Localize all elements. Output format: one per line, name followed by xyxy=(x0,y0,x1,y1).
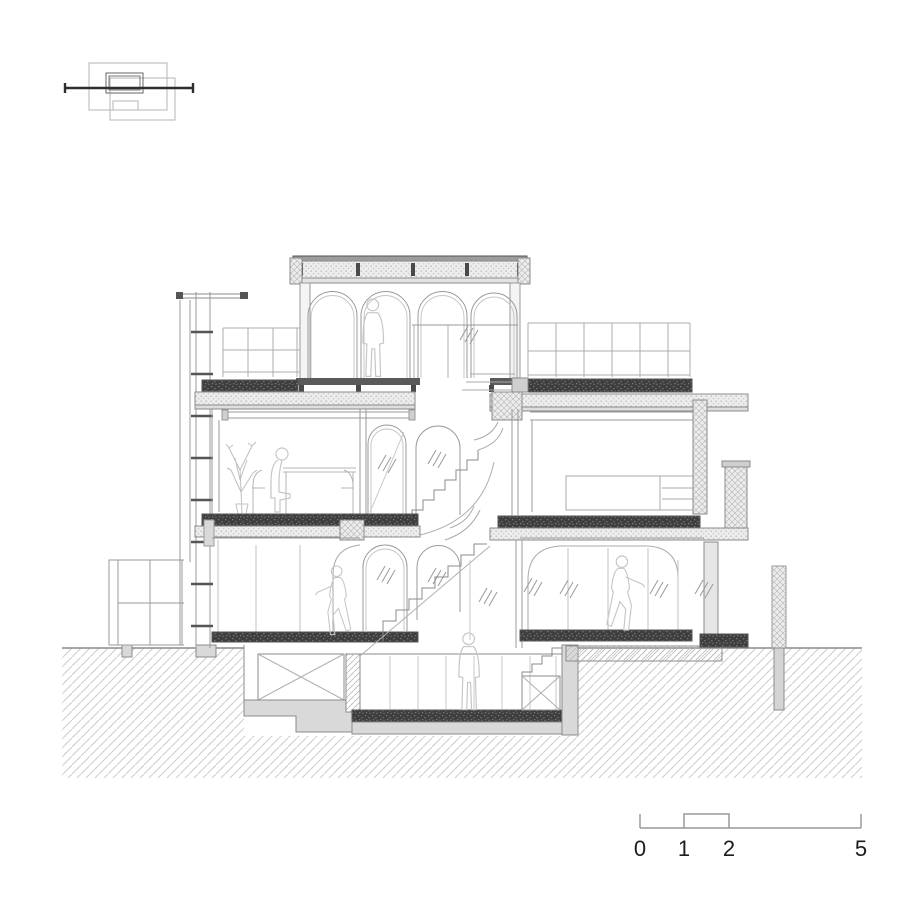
top-floor xyxy=(296,283,524,392)
section-cut-line xyxy=(65,83,193,93)
scale-label-2: 2 xyxy=(723,836,735,861)
scale-label-0: 0 xyxy=(634,836,646,861)
cabinet xyxy=(566,476,696,510)
person-walking-right xyxy=(607,556,645,630)
glazing-mark-icon xyxy=(377,566,395,584)
basement-floor-dark-band xyxy=(352,710,578,722)
floor-band-right xyxy=(498,516,700,528)
wide-arch xyxy=(528,546,678,632)
glazing-mark-icon xyxy=(650,580,668,598)
room-frame-right xyxy=(530,412,693,512)
fence-gate-post xyxy=(109,560,118,645)
floor-layers-left xyxy=(195,526,420,537)
fence-post-right xyxy=(772,566,786,710)
chimney-cap-left xyxy=(176,292,183,299)
frame-block-right xyxy=(409,410,415,420)
fence-rails xyxy=(118,560,184,645)
upper-flight-stringer xyxy=(420,462,494,535)
slab-layers-right xyxy=(490,394,748,407)
roof-build-up xyxy=(293,261,527,278)
basement xyxy=(0,0,578,735)
basement-floor-slab xyxy=(352,722,578,734)
glazing-mark-icon xyxy=(479,588,497,606)
roof-assembly xyxy=(290,256,530,284)
scale-bar-line xyxy=(640,814,861,828)
corner-block xyxy=(204,520,214,546)
right-terrace-railing xyxy=(528,323,690,377)
footing-fence xyxy=(122,645,132,657)
footing-left-wall xyxy=(196,645,216,657)
arch-corner xyxy=(333,545,360,640)
drawing-sheet: 0 1 2 5 xyxy=(0,0,920,920)
second-floor-right-room xyxy=(530,400,707,514)
terrace-gravel-right xyxy=(528,379,692,392)
glass-mullions xyxy=(568,548,678,630)
ground-floor-right-room xyxy=(516,538,713,648)
top-floor-sill-left xyxy=(296,378,420,385)
glazing-mark-icon xyxy=(428,450,446,468)
floor-dark-band xyxy=(520,630,692,641)
roof-edge-block-left xyxy=(290,258,302,284)
freestanding-post-footing xyxy=(774,648,784,710)
left-wall-lines xyxy=(196,292,210,648)
fence-left xyxy=(109,560,184,645)
basement-wall-left xyxy=(346,654,360,712)
key-plan xyxy=(65,63,193,120)
glazing-mark-icon xyxy=(460,326,478,344)
glazing-mark-icon xyxy=(560,580,578,598)
footing-right xyxy=(566,646,722,661)
person-seated xyxy=(271,448,290,512)
chimney-cap-right xyxy=(240,292,248,299)
roof-soffit xyxy=(293,278,527,283)
ground-floor-left-room xyxy=(204,520,418,642)
roof-cap-line xyxy=(293,256,527,261)
stair-main xyxy=(360,544,490,656)
right-wing-wall xyxy=(704,542,718,648)
arched-door xyxy=(368,425,406,515)
freestanding-post xyxy=(772,566,786,648)
chair-right xyxy=(341,470,354,514)
winder-treads xyxy=(474,422,503,450)
key-plan-notch xyxy=(113,101,138,110)
arched-openings xyxy=(308,292,517,379)
slab-block-stair xyxy=(340,520,364,540)
terrace-gravel-left xyxy=(202,380,298,391)
roof-edge-block-right xyxy=(518,258,530,284)
floor-band-left xyxy=(202,514,418,526)
slab-layers-left xyxy=(195,392,415,405)
scale-bar: 0 1 2 5 xyxy=(634,814,867,861)
top-floor-wall-right xyxy=(510,283,520,380)
sill-posts xyxy=(299,385,521,392)
dining-table xyxy=(283,468,356,514)
stair-arrival-treads xyxy=(462,374,515,390)
plant xyxy=(226,442,257,514)
glass-door xyxy=(412,325,518,378)
slab-edge-left xyxy=(195,405,415,409)
chimney xyxy=(176,292,248,299)
section-drawing-canvas: 0 1 2 5 xyxy=(0,0,920,920)
person-top-floor xyxy=(363,299,384,376)
frame-block-left xyxy=(222,410,228,420)
upper-flight-steps xyxy=(412,450,478,520)
left-terrace-railing xyxy=(223,328,300,377)
stairwell-wall-left xyxy=(360,409,366,515)
glazing-mark-icon xyxy=(524,578,542,596)
right-wall-cut xyxy=(693,400,707,514)
stairwell-wall-right xyxy=(512,409,518,515)
scale-label-1: 1 xyxy=(678,836,690,861)
glass-mullions xyxy=(218,540,300,636)
ground-floor-slab xyxy=(195,506,748,540)
key-plan-outline xyxy=(89,63,167,110)
scale-label-5: 5 xyxy=(855,836,867,861)
parapet-cap xyxy=(722,461,750,467)
chair-left xyxy=(252,470,265,514)
slab-edge-right xyxy=(490,407,748,411)
terrace-edge-block xyxy=(512,378,528,392)
second-floor-slab xyxy=(195,378,748,420)
right-wing-base-band xyxy=(700,634,748,647)
